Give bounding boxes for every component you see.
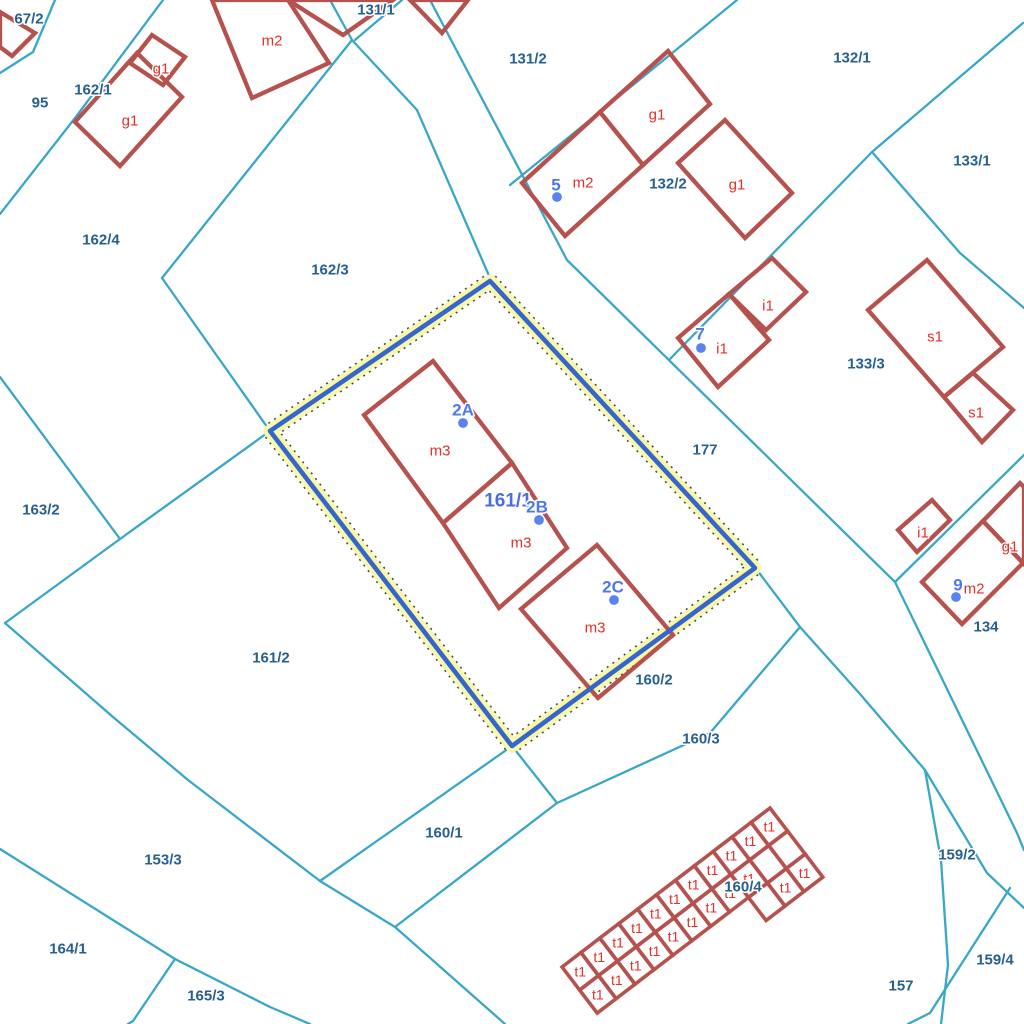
parcel-label[interactable]: 67/2 — [14, 11, 43, 28]
parcel-line — [120, 431, 270, 539]
garage-label: t1 — [688, 877, 700, 893]
parcel-label[interactable]: 160/3 — [682, 731, 720, 748]
garage-label: t1 — [649, 943, 661, 959]
parcel-label[interactable]: 165/3 — [187, 988, 225, 1005]
parcel-label[interactable]: 95 — [32, 95, 49, 112]
address-dot[interactable] — [951, 592, 962, 603]
building-label: m3 — [430, 443, 451, 460]
building-outline — [729, 258, 806, 330]
garage-label: t1 — [780, 879, 792, 895]
building-label: g1 — [729, 177, 746, 194]
address-label[interactable]: 2A — [452, 401, 474, 420]
garage-label: t1 — [668, 929, 680, 945]
building-label: m2 — [573, 175, 594, 192]
parcel-line — [162, 40, 352, 278]
parcel-label[interactable]: 162/3 — [311, 262, 349, 279]
parcel-label[interactable]: 157 — [888, 978, 913, 995]
selected-parcel-label[interactable]: 161/1 — [484, 491, 532, 512]
address-dot[interactable] — [458, 418, 469, 429]
parcel-label[interactable]: 131/2 — [509, 51, 547, 68]
garage-label: t1 — [707, 862, 719, 878]
garages-layer: t1t1t1t1t1t1t1t1t1t1t1t1t1t1t1t1t1t1t1t1… — [562, 808, 823, 1013]
parcel-label[interactable]: 161/2 — [252, 650, 290, 667]
building-label: i1 — [917, 525, 929, 542]
selected-parcel-outline[interactable] — [270, 281, 755, 746]
garage-label: t1 — [763, 819, 775, 835]
parcel-label[interactable]: 132/2 — [649, 176, 687, 193]
map-viewport[interactable]: t1t1t1t1t1t1t1t1t1t1t1t1t1t1t1t1t1t1t1t1… — [0, 0, 1024, 1024]
selected-parcel-halo-layer — [270, 281, 755, 746]
garage-label: t1 — [631, 920, 643, 936]
address-label[interactable]: 7 — [695, 325, 704, 344]
address-dot[interactable] — [534, 515, 545, 526]
parcel-line — [162, 278, 270, 431]
parcel-label[interactable]: 133/1 — [953, 153, 991, 170]
parcel-label[interactable]: 162/1 — [74, 82, 112, 99]
building-label: m2 — [262, 33, 283, 50]
parcel-label[interactable]: 133/3 — [847, 356, 885, 373]
building-label: i1 — [762, 298, 774, 315]
parcel-label[interactable]: 160/4 — [724, 879, 762, 896]
address-label[interactable]: 2C — [602, 578, 624, 597]
building-label: g1 — [122, 113, 139, 130]
building-label: s1 — [968, 405, 984, 422]
garage-label: t1 — [650, 905, 662, 921]
building-outline — [922, 521, 1023, 624]
garage-label: t1 — [574, 963, 586, 979]
building-label: g1 — [153, 61, 170, 78]
buildings-layer — [0, 0, 1024, 698]
garage-label: t1 — [593, 949, 605, 965]
building-label: g1 — [649, 107, 666, 124]
parcel-line — [5, 623, 505, 1024]
garage-label: t1 — [612, 934, 624, 950]
parcel-label[interactable]: 177 — [692, 442, 717, 459]
selected-parcel-halo-dots — [270, 281, 755, 746]
parcel-label[interactable]: 164/1 — [49, 941, 87, 958]
building-label: i1 — [716, 341, 728, 358]
garage-cell — [769, 831, 806, 868]
parcel-line — [925, 770, 948, 1024]
building-label: g1 — [1002, 539, 1019, 556]
parcel-line — [0, 377, 120, 623]
building-label: m2 — [964, 581, 985, 598]
cadastral-map-canvas[interactable]: t1t1t1t1t1t1t1t1t1t1t1t1t1t1t1t1t1t1t1t1… — [0, 0, 1024, 1024]
building-label: m3 — [585, 620, 606, 637]
address-dot[interactable] — [552, 192, 563, 203]
parcel-line — [128, 959, 175, 1024]
address-dot[interactable] — [609, 595, 620, 606]
parcel-label[interactable]: 159/2 — [938, 847, 976, 864]
parcel-label[interactable]: 163/2 — [22, 502, 60, 519]
garage-label: t1 — [592, 986, 604, 1002]
parcel-label[interactable]: 160/2 — [635, 672, 673, 689]
garage-label: t1 — [669, 891, 681, 907]
address-label[interactable]: 2B — [526, 498, 548, 517]
garage-label: t1 — [705, 900, 717, 916]
garage-label: t1 — [745, 833, 757, 849]
garage-label: t1 — [726, 848, 738, 864]
garage-label: t1 — [799, 865, 811, 881]
parcel-line — [0, 0, 163, 214]
address-dot[interactable] — [696, 343, 707, 354]
parcel-line — [0, 849, 310, 1024]
parcel-line — [430, 0, 1024, 850]
parcel-label[interactable]: 162/4 — [82, 232, 120, 249]
garage-label: t1 — [687, 914, 699, 930]
parcel-label[interactable]: 132/1 — [833, 50, 871, 67]
parcel-lines-layer — [0, 0, 1024, 1024]
parcel-line — [895, 455, 1024, 582]
selected-parcel-halo — [270, 281, 755, 746]
parcel-label[interactable]: 160/1 — [425, 825, 463, 842]
parcel-label[interactable]: 159/4 — [976, 952, 1014, 969]
garage-label: t1 — [630, 957, 642, 973]
parcel-label[interactable]: 131/1 — [357, 2, 395, 19]
garage-label: t1 — [611, 972, 623, 988]
building-label: s1 — [927, 329, 943, 346]
parcel-label[interactable]: 134 — [973, 619, 999, 636]
parcel-line — [512, 746, 557, 803]
building-labels-layer: m2g1g1m2g1g1i1i1s1s1i1g1m2m3m3m3 — [122, 33, 1019, 637]
parcel-label[interactable]: 153/3 — [144, 852, 182, 869]
building-label: m3 — [511, 535, 532, 552]
